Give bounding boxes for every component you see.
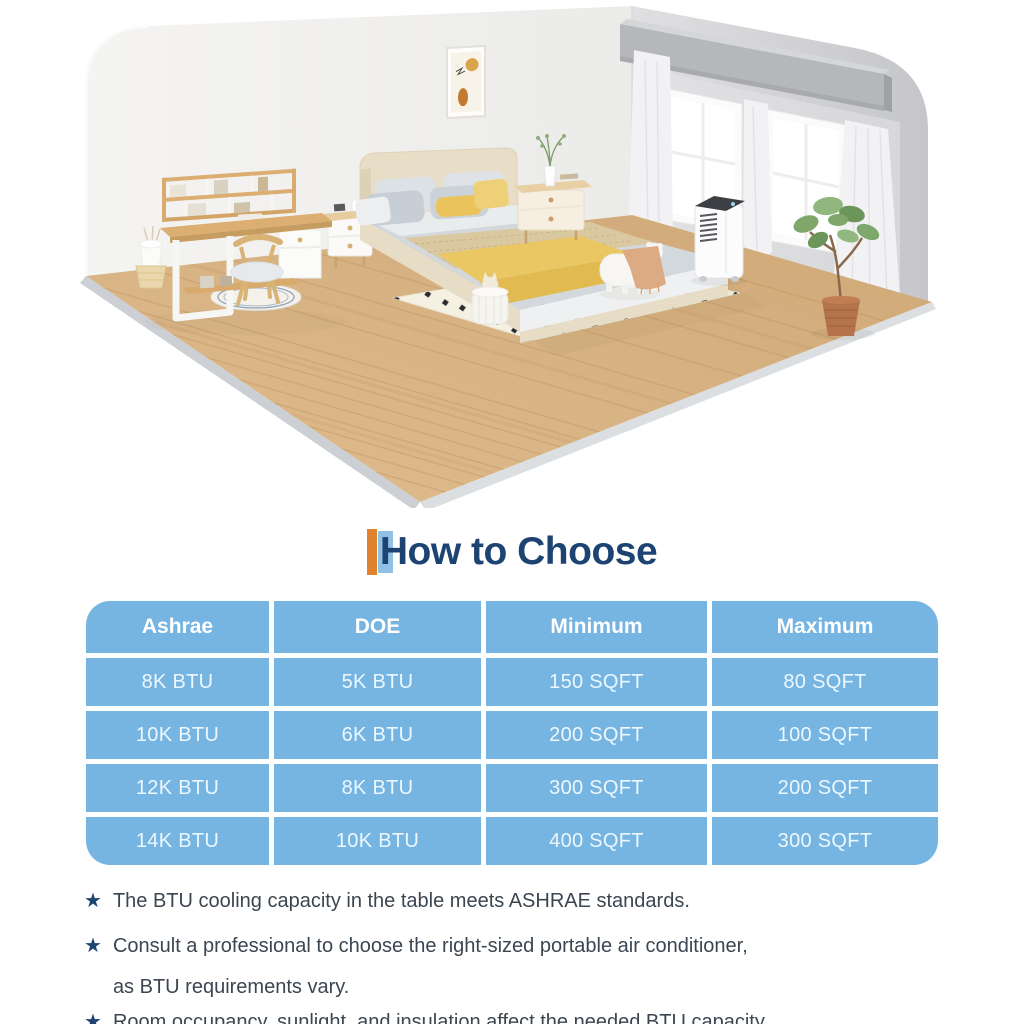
table-cell: 200 SQFT: [486, 711, 707, 759]
bedroom-illustration: [0, 0, 1024, 508]
table-cell: 400 SQFT: [486, 817, 707, 865]
window-right: [766, 109, 846, 255]
table-cell: 300 SQFT: [712, 817, 938, 865]
table-cell: 14K BTU: [86, 817, 269, 865]
table-cell: 10K BTU: [274, 817, 481, 865]
bedroom-scene-svg: [0, 0, 1024, 508]
table-cell: 150 SQFT: [486, 658, 707, 706]
star-icon: ★: [84, 1009, 102, 1024]
page-title: How to Choose: [380, 529, 657, 575]
desk-cabinet: [279, 230, 321, 278]
table-cell: 80 SQFT: [712, 658, 938, 706]
storage-basket: [136, 266, 166, 288]
star-icon: ★: [84, 888, 102, 914]
btu-sizing-table: Ashrae DOE Minimum Maximum 8K BTU 5K BTU…: [86, 601, 938, 865]
table-cell: 200 SQFT: [712, 764, 938, 812]
portable-air-conditioner: [691, 196, 747, 286]
wall-art: [447, 46, 485, 118]
note-text: Room occupancy, sunlight, and insulation…: [113, 1009, 769, 1024]
section-heading: How to Choose: [0, 529, 1024, 575]
col-header-ashrae: Ashrae: [86, 601, 269, 653]
note-text: The BTU cooling capacity in the table me…: [113, 888, 690, 914]
col-header-doe: DOE: [274, 601, 481, 653]
table-cell: 8K BTU: [274, 764, 481, 812]
table-cell: 10K BTU: [86, 711, 269, 759]
notes-list: ★ The BTU cooling capacity in the table …: [84, 888, 964, 1024]
col-header-minimum: Minimum: [486, 601, 707, 653]
table-cell: 100 SQFT: [712, 711, 938, 759]
note-ashrae-standards: ★ The BTU cooling capacity in the table …: [84, 888, 964, 914]
product-infographic: How to Choose Ashrae DOE Minimum Maximum…: [0, 0, 1024, 1024]
note-room-factors: ★ Room occupancy, sunlight, and insulati…: [84, 1009, 964, 1024]
table-cell: 8K BTU: [86, 658, 269, 706]
star-icon: ★: [84, 933, 102, 959]
note-consult-professional: ★ Consult a professional to choose the r…: [84, 933, 964, 1000]
note-text: Consult a professional to choose the rig…: [113, 933, 748, 1000]
table-cell: 5K BTU: [274, 658, 481, 706]
table-cell: 12K BTU: [86, 764, 269, 812]
heading-accent-orange-bar: [367, 529, 377, 575]
table-cell: 300 SQFT: [486, 764, 707, 812]
table-cell: 6K BTU: [274, 711, 481, 759]
col-header-maximum: Maximum: [712, 601, 938, 653]
